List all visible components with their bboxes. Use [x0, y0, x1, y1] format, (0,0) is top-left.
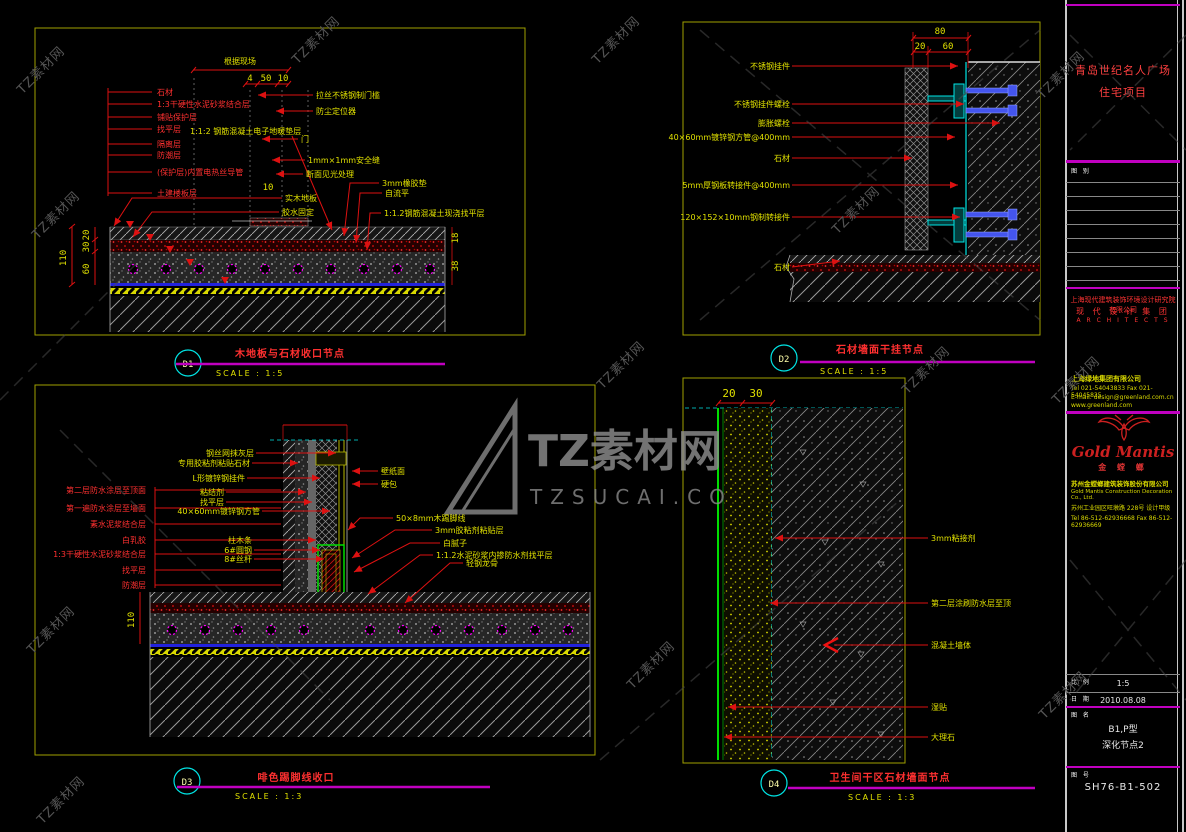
d4-label: 3mm粘接剂 — [931, 533, 976, 543]
d3-label-red: 找平层 — [122, 565, 146, 575]
d2-dim-total: 80 — [935, 27, 946, 37]
d3-floor-section — [150, 592, 590, 737]
d2-label: 120×152×10mm钢制转接件 — [680, 212, 790, 222]
d1-floor-section — [110, 227, 445, 332]
d4-dim-a: 20 — [722, 387, 735, 400]
client-email: E-mail: design@greenland.com.cn — [1068, 394, 1181, 401]
d1-dim-b: 50 — [261, 74, 272, 84]
d1-label-left: 1:3干硬性水泥砂浆结合层 — [157, 99, 250, 109]
contractor-address: 苏州工业园区旺墩路 228号 设计甲级 — [1068, 503, 1181, 512]
d1-label-right: 拉丝不锈钢制门槛 — [316, 90, 380, 100]
detail-d2: 80 20 60 不锈钢挂件 不锈钢挂件螺栓 膨胀螺栓 40×60mm镀锌钢方管… — [668, 22, 1040, 376]
scale-field-value: 1:5 — [1068, 679, 1178, 688]
d3-dim-total: 110 — [127, 612, 137, 628]
d4-label: 混凝土墙体 — [931, 640, 971, 650]
d3-label-red: 白乳胶 — [122, 535, 146, 545]
revision-label: 图 别 — [1071, 166, 1091, 175]
d3-label-red: 第二层防水涂层至顶面 — [66, 485, 146, 495]
client-web: www.greenland.com — [1068, 402, 1181, 409]
d3-label-mid: 8#丝杆 — [224, 554, 252, 564]
d4-top-dims: 20 30 — [716, 387, 775, 406]
d3-label-right: 50×8mm木踢脚线 — [396, 513, 466, 523]
d3-wall — [270, 425, 360, 592]
cad-drawing-canvas: 根据现场 4 50 10 110 20 30 60 18 38 10 石材 1:… — [0, 0, 1186, 832]
d1-dim-r2: 38 — [451, 261, 461, 272]
d3-label-right: 轻钢龙骨 — [466, 558, 498, 568]
date-field-value: 2010.08.08 — [1068, 696, 1178, 705]
d4-caption: D4 卫生间干区石材墙面节点 SCALE : 1:3 — [761, 770, 1035, 802]
d3-label-right: 3mm胶粘剂粘贴层 — [435, 525, 504, 535]
titleblock-outer-border — [1182, 0, 1184, 832]
revision-row-line — [1066, 280, 1180, 281]
cad-sheet: 根据现场 4 50 10 110 20 30 60 18 38 10 石材 1:… — [0, 0, 1186, 832]
d1-label-left: 铺贴保护层 — [157, 112, 197, 122]
revision-row-line — [1066, 210, 1180, 211]
revision-row-line — [1066, 266, 1180, 267]
d1-dim-a: 4 — [247, 74, 252, 84]
d1-threshold — [232, 218, 312, 226]
detail-d3: 110 第二层防水涂层至顶面 第一遍防水涂层至墙面 素水泥浆结合层 白乳胶 1:… — [35, 385, 595, 801]
d3-label-right: 壁纸面 — [381, 466, 405, 476]
d3-label-top: 粘结剂 — [200, 487, 224, 497]
d4-label: 大理石 — [931, 732, 955, 742]
revision-row-line — [1066, 182, 1180, 183]
d3-label-red: 第一遍防水涂层至墙面 — [66, 503, 146, 513]
gold-mantis-logo-cn: 金 螳 螂 — [1068, 462, 1178, 473]
d3-label-red: 防潮层 — [122, 580, 146, 590]
d1-label-right: 1mm×1mm安全缝 — [308, 155, 380, 165]
d2-caption: D2 石材墙面干挂节点 SCALE : 1:5 — [771, 343, 1035, 376]
d2-floor — [786, 255, 1040, 302]
d1-mid-label: 1:1:2 钢筋混凝土电子地暖垫层 — [190, 126, 301, 136]
client-name: 上海绿地集团有限公司 — [1068, 374, 1181, 384]
d1-left-labels: 石材 1:3干硬性水泥砂浆结合层 铺贴保护层 找平层 隔离层 防潮层 (保护层)… — [108, 87, 250, 198]
d1-top-note: 根据现场 — [224, 56, 256, 66]
d1-label-right: 1:1.2钢筋混凝土现浇找平层 — [384, 208, 485, 218]
d4-label: 湿贴 — [931, 702, 947, 712]
number-field-label: 图 号 — [1071, 770, 1091, 779]
d2-label: 5mm厚钢板转接件@400mm — [682, 180, 790, 190]
d1-label-left: 找平层 — [157, 124, 181, 134]
contractor-name-en: Gold Mantis Construction Decoration Co.,… — [1068, 489, 1181, 501]
d1-dim-r1: 18 — [451, 233, 461, 244]
d3-label-mid: 柱木条 — [228, 535, 252, 545]
d3-label-top: 找平层 — [200, 497, 224, 507]
d3-scale: SCALE : 1:3 — [235, 792, 303, 801]
d2-title: 石材墙面干挂节点 — [835, 343, 924, 356]
divider — [1066, 4, 1180, 6]
title-block: 青岛世纪名人广场 住宅项目 图 别 上海现代建筑装饰环境设计研究院有限公司 现 … — [1063, 0, 1186, 832]
project-title-line1: 青岛世纪名人广场 — [1068, 62, 1178, 78]
d1-dim-s1: 20 — [82, 230, 92, 241]
d1-label-right: 胶水固定 — [282, 207, 314, 217]
d3-label-red: 素水泥浆结合层 — [90, 519, 146, 529]
divider — [1066, 766, 1180, 768]
revision-row-line — [1066, 252, 1180, 253]
d1-label-right: 实木地板 — [285, 193, 317, 203]
revision-row-line — [1066, 224, 1180, 225]
d1-dim-c: 10 — [278, 74, 289, 84]
field-line — [1066, 692, 1180, 693]
contractor-tel: Tel 86-512-62936668 Fax 86-512-62936669 — [1068, 515, 1181, 529]
d4-scale: SCALE : 1:3 — [848, 793, 916, 802]
d3-label-top: 钢丝网抹灰层 — [206, 448, 254, 458]
d1-label-left: 隔离层 — [157, 139, 181, 149]
d1-dim-s2: 30 — [82, 242, 92, 253]
d2-dim-b: 60 — [943, 42, 954, 52]
gold-mantis-logo-text: Gold Mantis — [1068, 443, 1178, 461]
d1-label-right: 自流平 — [385, 188, 409, 198]
d1-dim-s3: 60 — [82, 264, 92, 275]
d2-bubble: D2 — [779, 355, 790, 365]
d1-label-right: 断面见光处理 — [306, 169, 354, 179]
divider — [1066, 706, 1180, 708]
d2-labels: 不锈钢挂件 不锈钢挂件螺栓 膨胀螺栓 40×60mm镀锌钢方管@400mm 石材… — [668, 61, 1000, 272]
d1-label-left: 防潮层 — [157, 150, 181, 160]
d4-label: 第二层涂刷防水层至顶 — [931, 598, 1011, 608]
d3-right-labels: 壁纸面 硬包 50×8mm木踢脚线 3mm胶粘剂粘贴层 白腻子 1:1.2水泥砂… — [348, 466, 553, 603]
design-firm-en: A R C H I T E C T S — [1068, 317, 1178, 324]
drawing-name-line1: B1,P型 — [1068, 722, 1178, 735]
d1-left-dims: 110 20 30 60 — [59, 224, 98, 287]
detail-d4: 20 30 3mm粘接剂 第二层涂刷防水层至顶 混凝土墙体 湿贴 大理石 D4 … — [683, 378, 1035, 802]
d1-dim-mid: 10 — [263, 183, 274, 193]
d2-scale: SCALE : 1:5 — [820, 367, 888, 376]
revision-row-line — [1066, 238, 1180, 239]
d3-label-mid: 6#圆钢 — [224, 545, 252, 555]
revision-row-line — [1066, 196, 1180, 197]
contractor-name: 苏州金螳螂建筑装饰股份有限公司 — [1068, 478, 1181, 488]
d3-label-top: 专用胶粘剂粘贴石材 — [178, 458, 250, 468]
d1-label-left: 土建楼板层 — [157, 188, 197, 198]
d3-label-top: 40×60mm镀锌钢方管 — [177, 506, 260, 516]
d2-dim-a: 20 — [915, 42, 926, 52]
design-firm-cn2: 现 代 设 计 集 团 — [1068, 306, 1178, 317]
d2-top-dims: 80 20 60 — [911, 27, 971, 68]
d2-label: 40×60mm镀锌钢方管@400mm — [668, 132, 790, 142]
gold-mantis-logo-icon — [1091, 414, 1157, 442]
d2-label: 石材 — [774, 262, 790, 272]
drawing-name-line2: 深化节点2 — [1068, 738, 1178, 751]
d1-caption: D1 木地板与石材收口节点 SCALE : 1:5 — [175, 347, 445, 378]
d3-label-top: L形镀锌钢挂件 — [193, 473, 245, 483]
d3-label-right: 硬包 — [381, 479, 397, 489]
name-field-label: 图 名 — [1071, 710, 1091, 719]
d1-label-right: 防尘定位器 — [316, 106, 356, 116]
d3-label-right: 白腻子 — [443, 538, 467, 548]
d2-label: 膨胀螺栓 — [758, 118, 790, 128]
d1-title: 木地板与石材收口节点 — [234, 347, 345, 360]
d4-bubble: D4 — [769, 780, 780, 790]
d1-top-dim: 根据现场 4 50 10 — [191, 56, 291, 87]
d2-label: 石材 — [774, 153, 790, 163]
d1-scale: SCALE : 1:5 — [216, 369, 284, 378]
d4-title: 卫生间干区石材墙面节点 — [830, 771, 951, 784]
d1-dim-total: 110 — [59, 250, 69, 266]
d4-dim-b: 30 — [749, 387, 762, 400]
d2-label: 不锈钢挂件 — [750, 61, 790, 71]
d3-caption: D3 啡色踢脚线收口 SCALE : 1:3 — [174, 768, 490, 801]
drawing-number-value: SH76-B1-502 — [1068, 782, 1178, 793]
divider — [1066, 160, 1180, 163]
d3-label-red: 1:3干硬性水泥砂浆结合层 — [53, 549, 146, 559]
d3-floor-dim: 110 — [127, 592, 140, 644]
divider — [1066, 287, 1180, 289]
project-title-line2: 住宅项目 — [1068, 84, 1178, 100]
d2-label: 不锈钢挂件螺栓 — [734, 99, 790, 109]
d1-label-left: (保护层)内置电热丝导管 — [157, 167, 243, 177]
d3-title: 啡色踢脚线收口 — [258, 771, 335, 784]
d1-label-left: 石材 — [157, 87, 173, 97]
d1-label-right: 3mm橡胶垫 — [382, 178, 427, 188]
d1-label-right: 门 — [301, 134, 309, 144]
field-line — [1066, 674, 1180, 675]
detail-d1: 根据现场 4 50 10 110 20 30 60 18 38 10 石材 1:… — [35, 28, 525, 378]
